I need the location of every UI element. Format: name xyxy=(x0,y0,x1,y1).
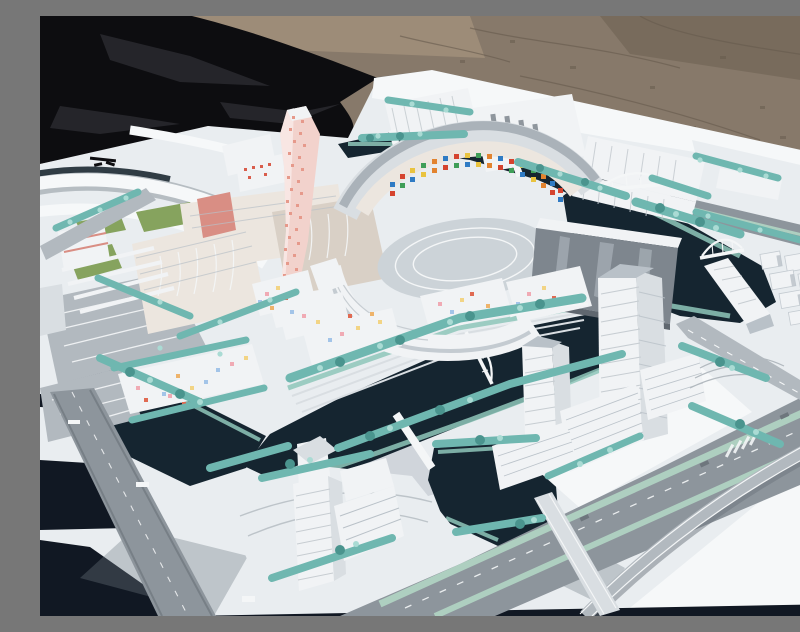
west-edge-slab xyxy=(40,284,66,336)
photo-architectural-model xyxy=(40,16,800,616)
